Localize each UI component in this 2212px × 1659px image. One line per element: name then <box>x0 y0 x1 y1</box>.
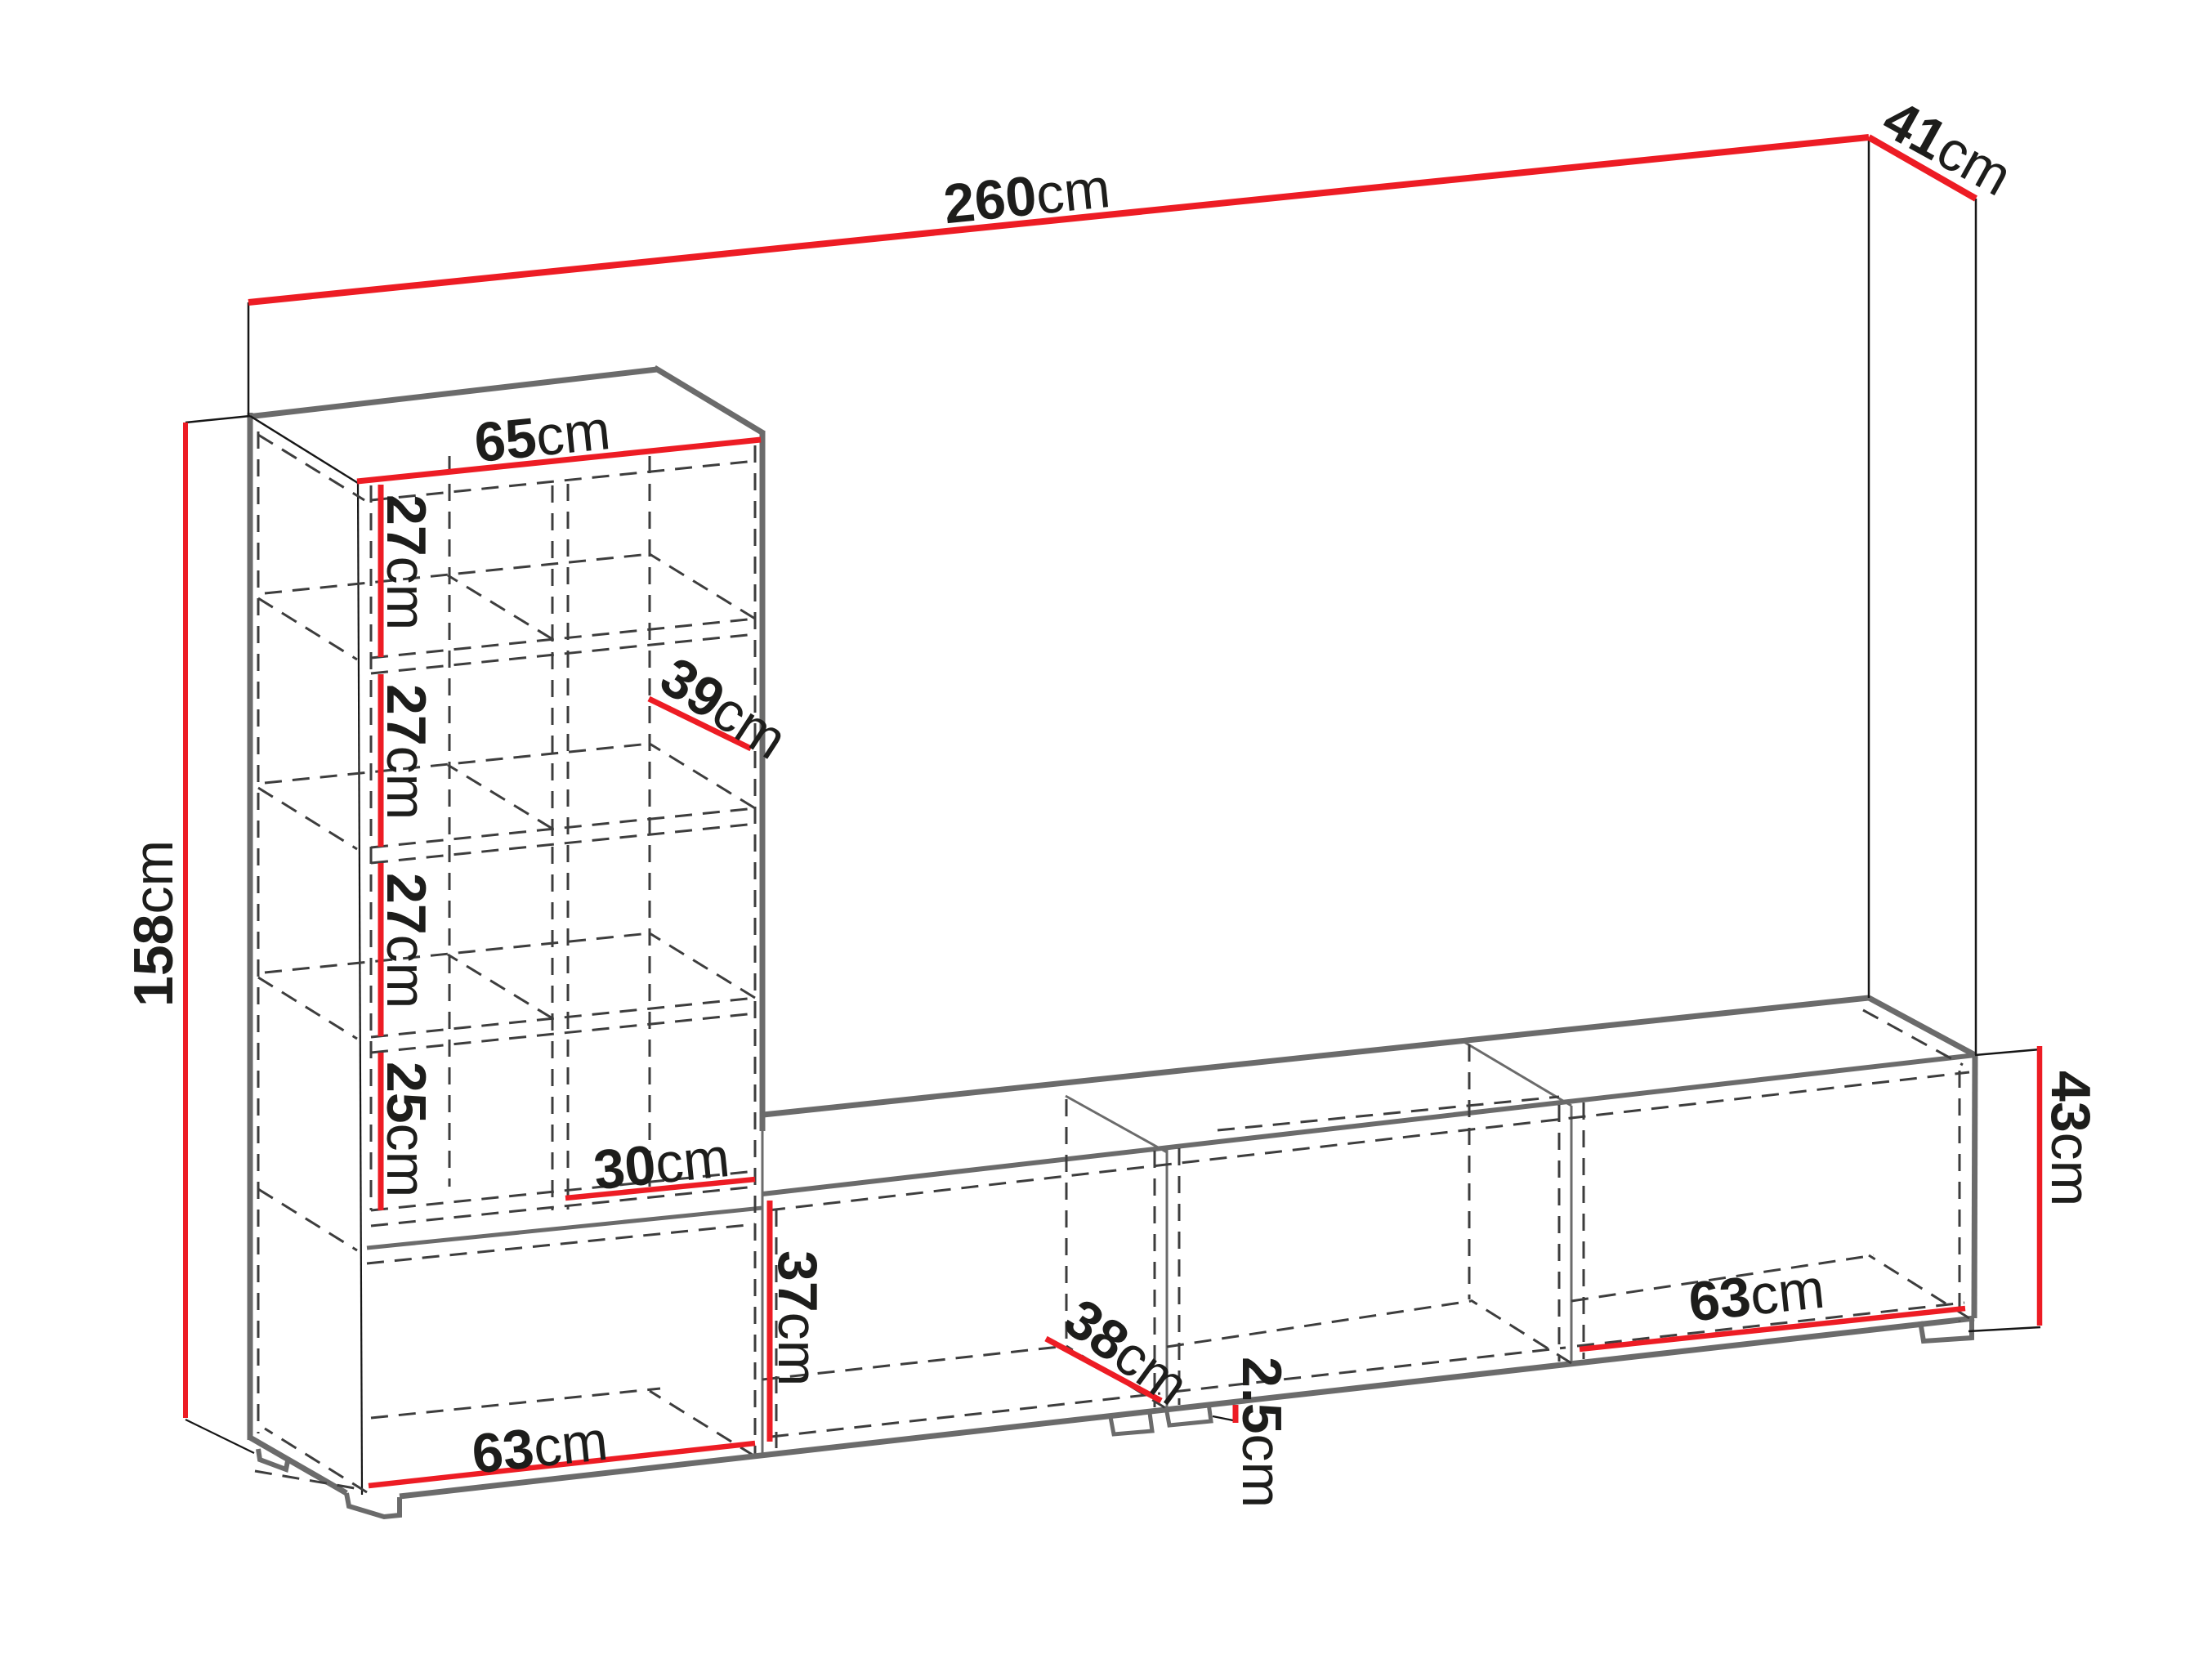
svg-text:27cm: 27cm <box>375 494 437 630</box>
svg-text:25cm: 25cm <box>375 1062 437 1197</box>
svg-text:2.5cm: 2.5cm <box>1231 1357 1293 1508</box>
svg-text:27cm: 27cm <box>375 684 437 820</box>
svg-text:37cm: 37cm <box>766 1250 829 1386</box>
svg-text:27cm: 27cm <box>375 873 437 1008</box>
svg-text:158cm: 158cm <box>123 840 185 1007</box>
svg-text:43cm: 43cm <box>2040 1071 2102 1206</box>
